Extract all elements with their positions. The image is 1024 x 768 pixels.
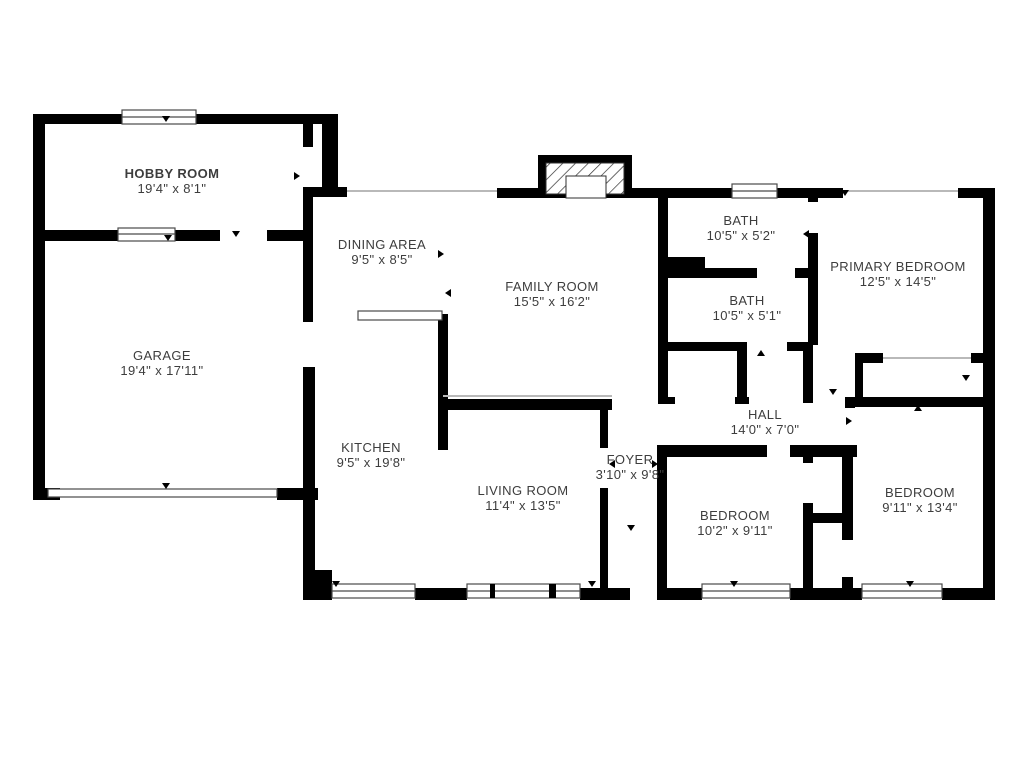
room-dimensions: 9'5" x 8'5" (338, 252, 426, 267)
floorplan-drawing (0, 0, 1024, 768)
room-name: BEDROOM (882, 485, 958, 500)
room-label-hall: HALL 14'0" x 7'0" (731, 407, 800, 437)
room-dimensions: 15'5" x 16'2" (505, 294, 599, 309)
room-label-hobby-room: HOBBY ROOM 19'4" x 8'1" (125, 166, 220, 196)
room-name: GARAGE (120, 348, 203, 363)
room-dimensions: 10'5" x 5'2" (707, 228, 776, 243)
room-label-bedroom-right: BEDROOM 9'11" x 13'4" (882, 485, 958, 515)
room-name: HALL (731, 407, 800, 422)
room-dimensions: 9'5" x 19'8" (337, 455, 406, 470)
room-name: BATH (707, 213, 776, 228)
room-dimensions: 19'4" x 17'11" (120, 363, 203, 378)
room-label-foyer: FOYER 3'10" x 9'8" (596, 452, 665, 482)
room-dimensions: 9'11" x 13'4" (882, 500, 958, 515)
room-dimensions: 10'5" x 5'1" (713, 308, 782, 323)
room-label-kitchen: KITCHEN 9'5" x 19'8" (337, 440, 406, 470)
room-dimensions: 10'2" x 9'11" (697, 523, 773, 538)
room-name: LIVING ROOM (477, 483, 568, 498)
room-name: FAMILY ROOM (505, 279, 599, 294)
room-name: FOYER (596, 452, 665, 467)
room-name: HOBBY ROOM (125, 166, 220, 181)
room-dimensions: 3'10" x 9'8" (596, 467, 665, 482)
room-name: KITCHEN (337, 440, 406, 455)
room-label-garage: GARAGE 19'4" x 17'11" (120, 348, 203, 378)
room-label-bath-upper: BATH 10'5" x 5'2" (707, 213, 776, 243)
fireplace (538, 155, 632, 198)
floorplan-canvas: HOBBY ROOM 19'4" x 8'1" GARAGE 19'4" x 1… (0, 0, 1024, 768)
room-dimensions: 14'0" x 7'0" (731, 422, 800, 437)
room-label-dining-area: DINING AREA 9'5" x 8'5" (338, 237, 426, 267)
room-label-primary-bedroom: PRIMARY BEDROOM 12'5" x 14'5" (830, 259, 966, 289)
room-name: BATH (713, 293, 782, 308)
room-name: BEDROOM (697, 508, 773, 523)
room-dimensions: 11'4" x 13'5" (477, 498, 568, 513)
room-dimensions: 12'5" x 14'5" (830, 274, 966, 289)
room-label-bath-lower: BATH 10'5" x 5'1" (713, 293, 782, 323)
room-label-bedroom-left: BEDROOM 10'2" x 9'11" (697, 508, 773, 538)
room-name: PRIMARY BEDROOM (830, 259, 966, 274)
room-label-family-room: FAMILY ROOM 15'5" x 16'2" (505, 279, 599, 309)
room-label-living-room: LIVING ROOM 11'4" x 13'5" (477, 483, 568, 513)
room-dimensions: 19'4" x 8'1" (125, 181, 220, 196)
room-name: DINING AREA (338, 237, 426, 252)
